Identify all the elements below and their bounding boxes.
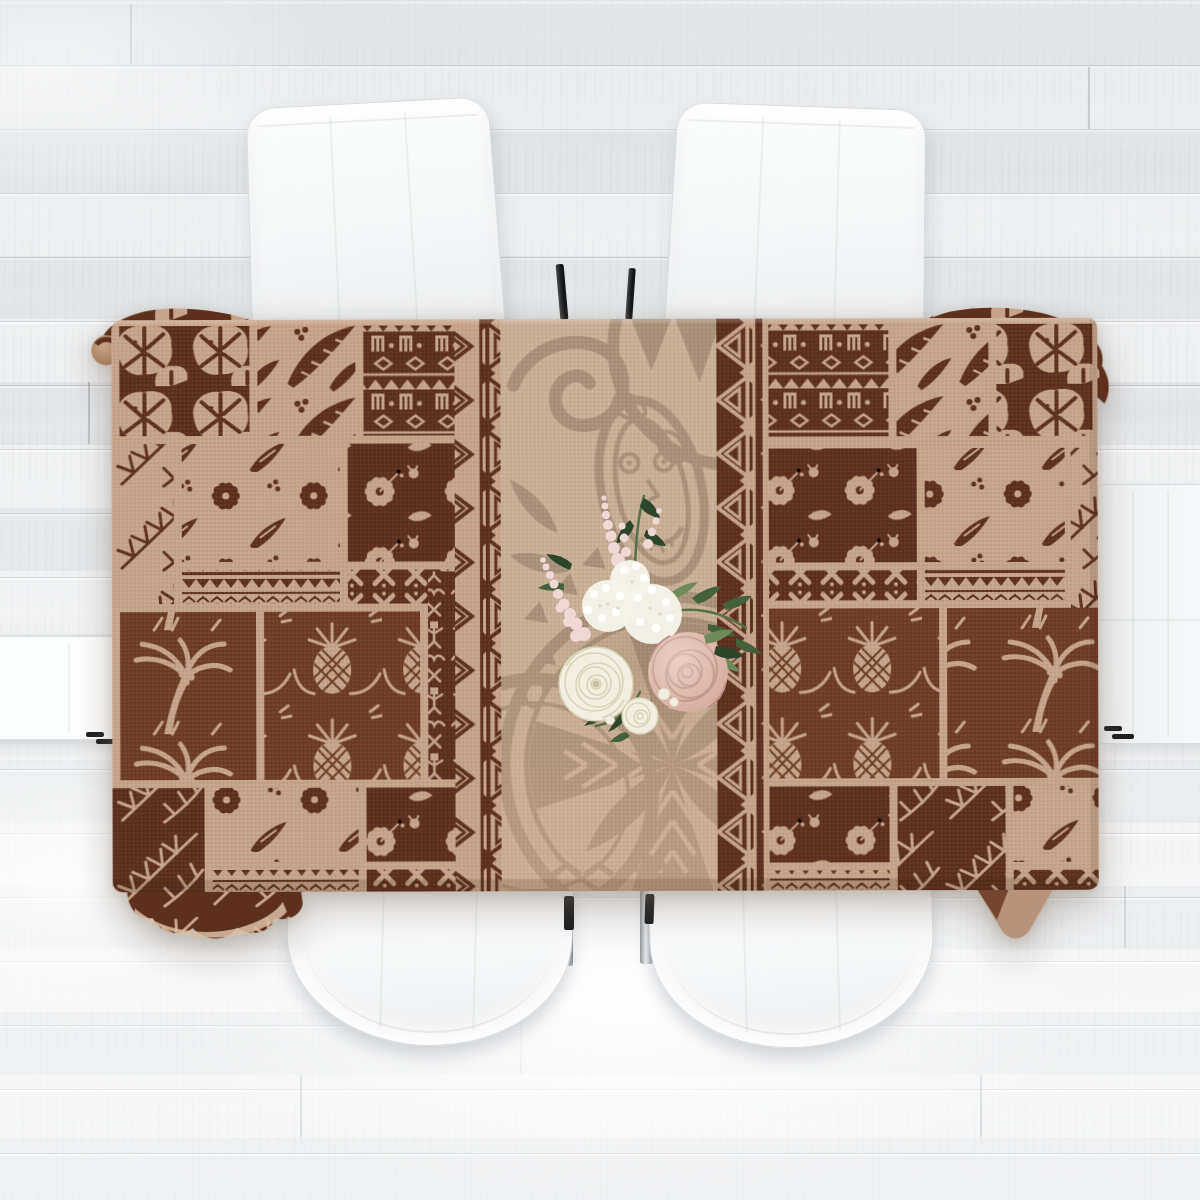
plank-joint <box>300 1075 302 1137</box>
chair-stitch-line <box>257 114 479 127</box>
plank-joint <box>1088 67 1090 129</box>
chair-stitch-line <box>666 870 919 1039</box>
chair-foot <box>1112 734 1134 739</box>
chair-seam <box>1101 619 1200 621</box>
chair-seam <box>1167 491 1169 737</box>
chair-left <box>0 636 122 740</box>
chair-seam <box>404 112 419 331</box>
plank-joint <box>980 1075 982 1137</box>
table-leg-clamp <box>564 896 574 930</box>
white-ranunculus <box>559 647 633 721</box>
flower-bouquet <box>512 486 768 742</box>
pink-rose <box>648 632 728 712</box>
small-white-rose <box>622 698 658 734</box>
chair-seam <box>1132 491 1134 737</box>
chair-top-left <box>246 96 506 340</box>
plank-joint <box>130 4 132 64</box>
chair-top-right <box>664 102 926 339</box>
chair-stitch-line <box>687 119 915 129</box>
chair-seam <box>753 116 764 331</box>
plank-joint <box>1124 886 1126 948</box>
table-leg-clamp <box>644 894 654 924</box>
plank-joint <box>88 382 90 444</box>
chair-stitch-line <box>302 872 556 1036</box>
chair-foot <box>86 732 104 737</box>
chair-right <box>1096 484 1200 744</box>
chair-seam <box>833 119 841 334</box>
chair-seam <box>329 116 341 335</box>
chair-seam <box>68 643 70 733</box>
chair-foot <box>1104 726 1122 731</box>
